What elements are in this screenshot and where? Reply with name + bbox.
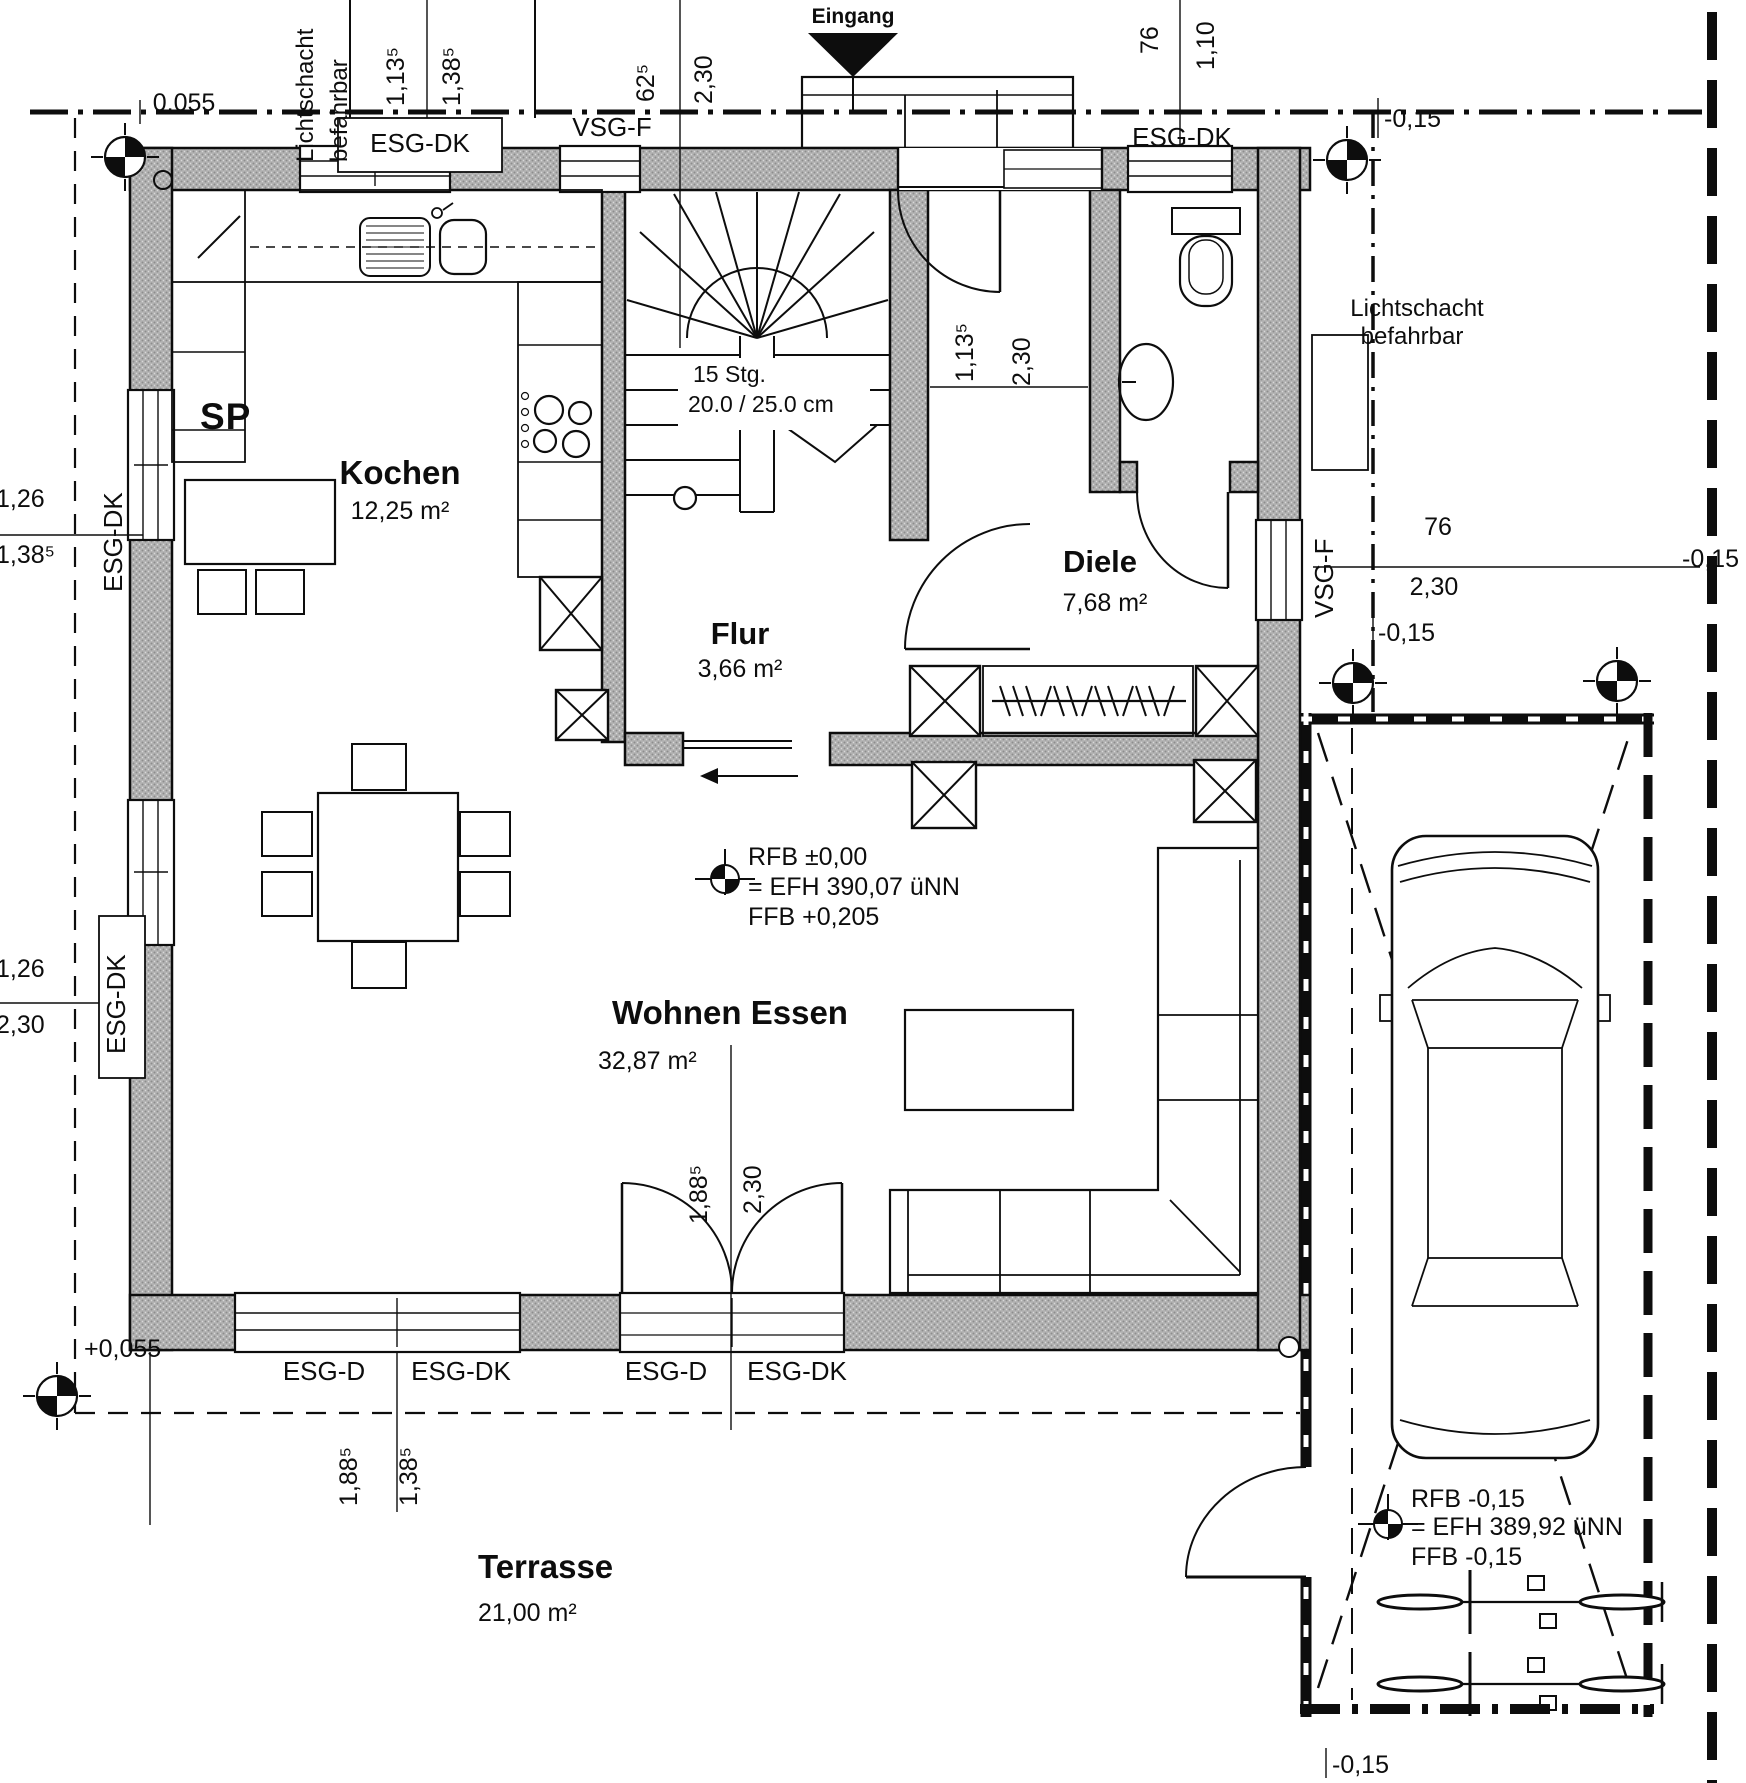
tall-cabinet	[540, 577, 602, 650]
floor-plan: Eingang 0,055 Lichtschacht befahrbar 1,1…	[0, 0, 1746, 1783]
shaft-box	[1196, 666, 1258, 736]
stairs-text-1: 15 Stg.	[693, 362, 766, 386]
room-name-terrasse: Terrasse	[478, 1550, 613, 1585]
room-area-kochen: 12,25 m²	[325, 498, 475, 524]
level-garage-1: RFB -0,15	[1411, 1486, 1525, 1512]
level-house-2: = EFH 390,07 üNN	[748, 874, 960, 900]
room-area-flur: 3,66 m²	[675, 656, 805, 682]
dim-topright: -0,15	[1384, 106, 1441, 132]
flur-diele-door	[905, 524, 1030, 649]
wc-fixtures	[1119, 208, 1240, 420]
level-house-3: FFB +0,205	[748, 904, 879, 930]
dim-door-1: 1,88⁵	[686, 1130, 722, 1224]
level-house-1: RFB ±0,00	[748, 844, 867, 870]
sp-label: SP	[200, 398, 251, 437]
dim-north-6: 1,10	[1193, 6, 1227, 70]
garage-side-door	[1186, 1467, 1306, 1577]
window-north-wc	[1128, 146, 1232, 192]
shaft-box	[912, 762, 976, 828]
window-label-west-living: ESG-DK	[103, 936, 137, 1054]
stairs-text-2: 20.0 / 25.0 cm	[688, 392, 834, 416]
dim-west-3: 1,26	[0, 956, 45, 982]
dim-east-3: -0,15	[1378, 620, 1435, 646]
lichtschacht-left-line1: Lichtschacht	[293, 0, 325, 162]
dim-right-edge: -0,15	[1682, 546, 1739, 572]
entrance-opening	[898, 148, 1102, 190]
room-area-diele: 7,68 m²	[1045, 590, 1165, 616]
kitchen-bar	[185, 480, 335, 614]
lightwell-east	[1312, 335, 1368, 470]
coat-rack	[983, 666, 1193, 736]
dim-door-2: 2,30	[740, 1132, 776, 1214]
dim-entrance-2: 2,30	[1009, 306, 1045, 386]
window-label-north-stairs: VSG-F	[556, 114, 668, 141]
sliding-door	[683, 741, 798, 784]
window-north-stairs	[560, 146, 640, 192]
lichtschacht-right-line1: Lichtschacht	[1332, 296, 1502, 321]
kitchen-sink	[360, 203, 486, 276]
lichtschacht-right-line2: befahrbar	[1342, 324, 1482, 349]
window-label-north-wc: ESG-DK	[1122, 124, 1242, 151]
window-label-west-kitchen: ESG-DK	[100, 474, 134, 592]
window-label-south-4: ESG-DK	[734, 1358, 860, 1385]
eingang-arrow-icon	[808, 33, 898, 77]
dim-west-2: 1,38⁵	[0, 542, 55, 568]
room-name-kochen: Kochen	[320, 456, 480, 491]
downpipe-icon	[1279, 1337, 1299, 1357]
dim-bottom-1: 1,88⁵	[336, 1412, 372, 1506]
stairs	[625, 192, 890, 512]
car-top-view	[1380, 836, 1610, 1458]
dim-north-5: 76	[1137, 6, 1171, 54]
eingang-label: Eingang	[806, 6, 900, 28]
shaft-box	[1194, 760, 1256, 822]
toilet-tank	[1172, 208, 1240, 234]
dim-plus0055: +0,055	[84, 1336, 161, 1362]
dim-north-3: 62⁵	[633, 14, 669, 102]
cooktop	[522, 393, 592, 458]
dim-0055: 0,055	[138, 90, 230, 116]
window-label-south-3: ESG-D	[610, 1358, 722, 1385]
dim-north-2: 1,38⁵	[439, 16, 475, 106]
window-label-south-1: ESG-D	[268, 1358, 380, 1385]
dim-east-2: 2,30	[1392, 574, 1476, 600]
room-area-wohnen: 32,87 m²	[598, 1048, 697, 1074]
dim-north-4: 2,30	[691, 16, 727, 104]
shaft-box	[910, 666, 980, 736]
dim-bottom-2: 1,38⁵	[396, 1412, 432, 1506]
coffee-table	[905, 1010, 1073, 1110]
window-label-south-2: ESG-DK	[398, 1358, 524, 1385]
dim-west-1: 1,26	[0, 486, 45, 512]
living-furniture	[262, 744, 1299, 1357]
french-door-south	[620, 1183, 844, 1352]
dim-east-1: 76	[1408, 514, 1468, 540]
entrance-porch	[802, 33, 1073, 148]
room-area-terrasse: 21,00 m²	[478, 1600, 577, 1626]
room-name-diele: Diele	[1040, 546, 1160, 579]
level-garage-2: = EFH 389,92 üNN	[1411, 1514, 1623, 1540]
level-garage-3: FFB -0,15	[1411, 1544, 1522, 1570]
shaft-box	[556, 690, 608, 740]
dim-north-1: 1,13⁵	[383, 16, 419, 106]
window-east-diele	[1256, 520, 1302, 620]
dim-entrance-1: 1,13⁵	[952, 286, 988, 382]
dim-west-4: 2,30	[0, 1012, 45, 1038]
dining-table	[262, 744, 510, 988]
dim-bottom-garage: -0,15	[1332, 1752, 1389, 1778]
window-label-north-kitchen: ESG-DK	[340, 130, 500, 157]
room-name-wohnen: Wohnen Essen	[590, 996, 870, 1031]
window-label-east-diele: VSG-F	[1311, 526, 1345, 618]
bicycle	[1378, 1570, 1664, 1634]
window-west-kitchen	[128, 390, 174, 540]
toilet-bowl	[1180, 236, 1232, 306]
room-name-flur: Flur	[685, 618, 795, 651]
window-south-terrace	[235, 1293, 520, 1352]
